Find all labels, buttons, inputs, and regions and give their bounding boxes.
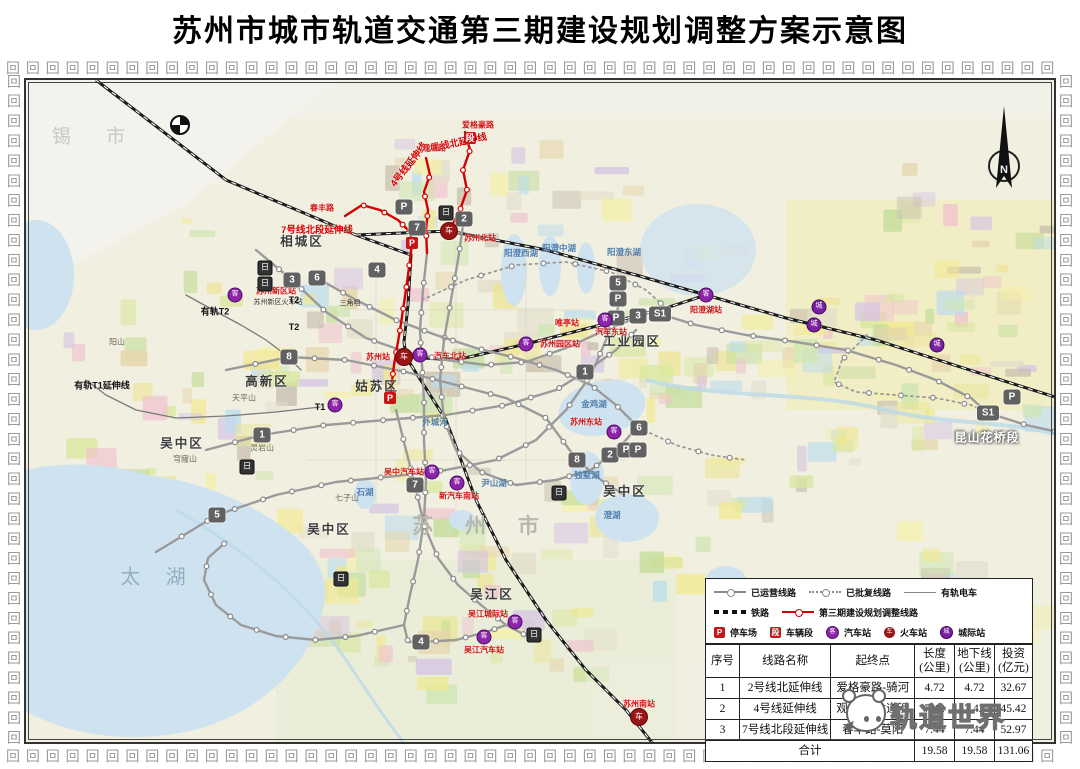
legend-label: 车辆段 xyxy=(786,626,813,639)
railway-station-icon: 日 xyxy=(240,460,255,475)
legend-label: 汽车站 xyxy=(844,626,871,639)
station-name-label: 春丰路 xyxy=(310,203,334,214)
city-label: 苏 州 市 xyxy=(412,510,552,540)
line-badge-P: P xyxy=(610,292,627,307)
train-station-icon: 车 xyxy=(630,708,648,726)
legend-row: P停车场段车辆段客汽车站车火车站城城际站 xyxy=(714,622,1024,642)
station-name-label: 吴江汽车站 xyxy=(464,645,504,656)
district-label: 吴中区 xyxy=(307,519,351,538)
phase3-line-label: 7号线北段延伸线 xyxy=(281,222,353,236)
table-header: 序号 xyxy=(706,645,740,678)
table-cell: 4号线延伸线 xyxy=(739,699,831,720)
line-badge-S1: S1 xyxy=(977,406,999,421)
legend-item-inter: 城城际站 xyxy=(940,626,985,639)
legend-label: 火车站 xyxy=(900,626,927,639)
line-badge-3: 3 xyxy=(284,273,301,288)
bus-station-icon: 客 xyxy=(607,425,622,440)
watermark: 轨道世界 xyxy=(838,684,1048,742)
table-total-row: 合计19.5819.58131.06 xyxy=(706,741,1033,762)
line-badge-8: 8 xyxy=(281,350,298,365)
legend-swatch-operating xyxy=(714,591,746,593)
tram-label: T2 xyxy=(289,322,300,332)
line-badge-2: 2 xyxy=(456,212,473,227)
frame-ornament-right: 回 回 回 回 回 回 回 回 回 回 回 回 回 回 回 回 回 回 回 回 … xyxy=(1058,74,1074,750)
legend-label: 已运营线路 xyxy=(751,586,796,599)
line-badge-7: 7 xyxy=(407,478,424,493)
line-badge-P: P xyxy=(1004,390,1021,405)
legend-item-bus: 客汽车站 xyxy=(826,626,871,639)
bus-station-icon: 客 xyxy=(699,288,714,303)
page: { "title": "苏州市城市轨道交通第三期建设规划调整方案示意图", "c… xyxy=(0,0,1080,769)
legend-item-operating: 已运营线路 xyxy=(714,586,796,599)
line-badge-4: 4 xyxy=(413,635,430,650)
lake-label: 石湖 xyxy=(356,486,373,498)
legend-label: 有轨电车 xyxy=(941,586,977,599)
legend-row: 已运营线路已批复线路有轨电车 xyxy=(714,582,1024,602)
table-total-cell: 131.06 xyxy=(994,741,1032,762)
line-badge-6: 6 xyxy=(631,421,648,436)
line-badge-3: 3 xyxy=(630,309,647,324)
legend-item-depot-p: P停车场 xyxy=(714,626,757,639)
table-cell: 2号线北延伸线 xyxy=(739,678,831,699)
railway-station-icon: 日 xyxy=(258,261,273,276)
bus-station-icon: 客 xyxy=(328,398,343,413)
station-name-label: 汽车北站 xyxy=(434,351,466,362)
depot-parking-icon: P xyxy=(384,392,396,404)
station-name-label: 苏州东站 xyxy=(570,417,602,428)
station-name-label: 唯亭站 xyxy=(555,318,579,329)
lake-label: 阳澄中湖 xyxy=(542,242,576,254)
railway-station-icon: 日 xyxy=(527,628,542,643)
legend-swatch-phase3 xyxy=(782,611,814,613)
depot-parking-icon: P xyxy=(406,237,418,249)
legend-item-train: 车火车站 xyxy=(884,626,927,639)
line-badge-7: 7 xyxy=(409,221,426,236)
mountain-label: 七子山 xyxy=(335,493,359,504)
kunshan-section-label: 昆山花桥段 xyxy=(954,429,1019,446)
station-name-label: 吴江城际站 xyxy=(468,609,508,620)
station-name-label: 汽车东站 xyxy=(595,327,627,338)
table-cell: 3 xyxy=(706,720,740,741)
bus-station-icon: 客 xyxy=(508,615,523,630)
train-station-icon: 车 xyxy=(440,222,458,240)
table-cell: 2 xyxy=(706,699,740,720)
line-badge-1: 1 xyxy=(577,365,594,380)
watermark-text: 轨道世界 xyxy=(890,696,1006,735)
legend-label: 铁路 xyxy=(751,606,769,619)
legend-swatch-railway xyxy=(714,610,746,614)
legend-swatch-depot-p: P xyxy=(714,627,725,638)
railway-station-icon: 日 xyxy=(552,486,567,501)
legend-item-phase3: 第三期建设规划调整线路 xyxy=(782,606,918,619)
table-cell: 1 xyxy=(706,678,740,699)
railway-station-icon: 日 xyxy=(258,277,273,292)
wuxi-label: 锡 市 xyxy=(52,122,140,149)
bus-station-icon: 客 xyxy=(519,337,534,352)
bus-station-icon: 客 xyxy=(450,476,465,491)
tram-label: 有轨T2 xyxy=(201,305,230,318)
station-name-label: 新汽车南站 xyxy=(439,491,479,502)
legend-label: 已批复线路 xyxy=(846,586,891,599)
legend-item-tram: 有轨电车 xyxy=(904,586,977,599)
district-label: 吴中区 xyxy=(603,481,647,500)
table-total-cell: 19.58 xyxy=(955,741,995,762)
legend-swatch-depot-d: 段 xyxy=(770,627,781,638)
frame-ornament-top: 回 回 回 回 回 回 回 回 回 回 回 回 回 回 回 回 回 回 回 回 … xyxy=(6,60,1074,76)
station-name-label: 苏州园区站 xyxy=(540,339,580,350)
lake-label: 澄湖 xyxy=(603,509,620,521)
table-cell: 7号线北段延伸线 xyxy=(739,720,831,741)
table-header: 投资 (亿元) xyxy=(994,645,1032,678)
intercity-station-icon: 城 xyxy=(930,338,945,353)
legend-swatch-bus: 客 xyxy=(826,626,839,639)
bus-station-icon: 客 xyxy=(598,313,613,328)
page-title: 苏州市城市轨道交通第三期建设规划调整方案示意图 xyxy=(0,6,1080,50)
intercity-station-icon: 城 xyxy=(807,318,822,333)
bus-station-icon: 客 xyxy=(413,348,428,363)
legend-swatch-train: 车 xyxy=(884,627,895,638)
railway-station-icon: 日 xyxy=(439,206,454,221)
lake-label: 阳澄西湖 xyxy=(504,247,538,259)
line-badge-5: 5 xyxy=(209,508,226,523)
station-name-label: 苏州北站 xyxy=(464,233,496,244)
table-total-cell: 19.58 xyxy=(915,741,955,762)
station-name-label: 爱格豪路 xyxy=(462,120,494,131)
line-badge-6: 6 xyxy=(309,271,326,286)
line-badge-P: P xyxy=(630,443,647,458)
table-header: 起终点 xyxy=(831,645,915,678)
depot-yard-icon: 段 xyxy=(464,132,476,144)
legend-label: 停车场 xyxy=(730,626,757,639)
tram-label: 有轨T1延伸线 xyxy=(74,379,130,392)
bus-station-icon: 客 xyxy=(477,630,492,645)
lake-label: 尹山湖 xyxy=(481,477,507,489)
line-badge-4: 4 xyxy=(369,263,386,278)
legend-label: 第三期建设规划调整线路 xyxy=(819,606,918,619)
district-label: 吴江区 xyxy=(470,584,514,603)
table-header: 地下线 (公里) xyxy=(955,645,995,678)
minor-label: 三角咀 xyxy=(340,298,361,308)
mountain-label: 穹窿山 xyxy=(173,454,197,465)
station-name-label: 吴中汽车站 xyxy=(384,467,424,478)
bus-station-icon: 客 xyxy=(425,465,440,480)
mountain-label: 阳山 xyxy=(109,337,125,348)
tram-label: T2 xyxy=(289,295,300,305)
line-badge-5: 5 xyxy=(610,276,627,291)
frame-ornament-left: 回 回 回 回 回 回 回 回 回 回 回 回 回 回 回 回 回 回 回 回 … xyxy=(6,74,22,750)
north-arrow-label: N xyxy=(1000,164,1008,176)
station-name-label: 观塘路 xyxy=(422,143,446,154)
taihu-lake-label: 太 湖 xyxy=(120,561,196,590)
lake-label: 独墅湖 xyxy=(574,469,600,481)
station-name-label: 阳澄湖站 xyxy=(690,305,722,316)
intercity-station-icon: 城 xyxy=(812,300,827,315)
lake-label: 外城河 xyxy=(422,416,448,428)
line-badge-1: 1 xyxy=(254,428,271,443)
map-legend: 已运营线路已批复线路有轨电车铁路第三期建设规划调整线路P停车场段车辆段客汽车站车… xyxy=(705,578,1033,644)
line-badge-2: 2 xyxy=(602,448,619,463)
table-total-label: 合计 xyxy=(706,741,915,762)
lake-label: 金鸡湖 xyxy=(581,398,607,410)
legend-item-railway: 铁路 xyxy=(714,606,769,619)
legend-item-approved: 已批复线路 xyxy=(809,586,891,599)
district-label: 高新区 xyxy=(245,371,289,390)
legend-swatch-inter: 城 xyxy=(940,626,953,639)
watermark-panda-logo-icon xyxy=(846,694,886,732)
station-name-label: 苏州站 xyxy=(366,352,390,363)
railway-station-icon: 日 xyxy=(334,572,349,587)
district-label: 吴中区 xyxy=(160,433,204,452)
line-badge-P: P xyxy=(396,200,413,215)
legend-swatch-approved xyxy=(809,591,841,593)
legend-swatch-tram xyxy=(904,592,936,593)
table-header: 长度 (公里) xyxy=(915,645,955,678)
legend-row: 铁路第三期建设规划调整线路 xyxy=(714,602,1024,622)
lake-label: 阳澄东湖 xyxy=(607,246,641,258)
legend-label: 城际站 xyxy=(958,626,985,639)
mountain-label: 天平山 xyxy=(232,393,256,404)
mountain-label: 灵岩山 xyxy=(250,443,274,454)
bus-station-icon: 客 xyxy=(228,288,243,303)
line-badge-S1: S1 xyxy=(649,307,671,322)
line-badge-8: 8 xyxy=(569,453,586,468)
legend-item-depot-d: 段车辆段 xyxy=(770,626,813,639)
train-station-icon: 车 xyxy=(395,348,413,366)
tram-label: T1 xyxy=(315,402,326,412)
table-header: 线路名称 xyxy=(739,645,831,678)
